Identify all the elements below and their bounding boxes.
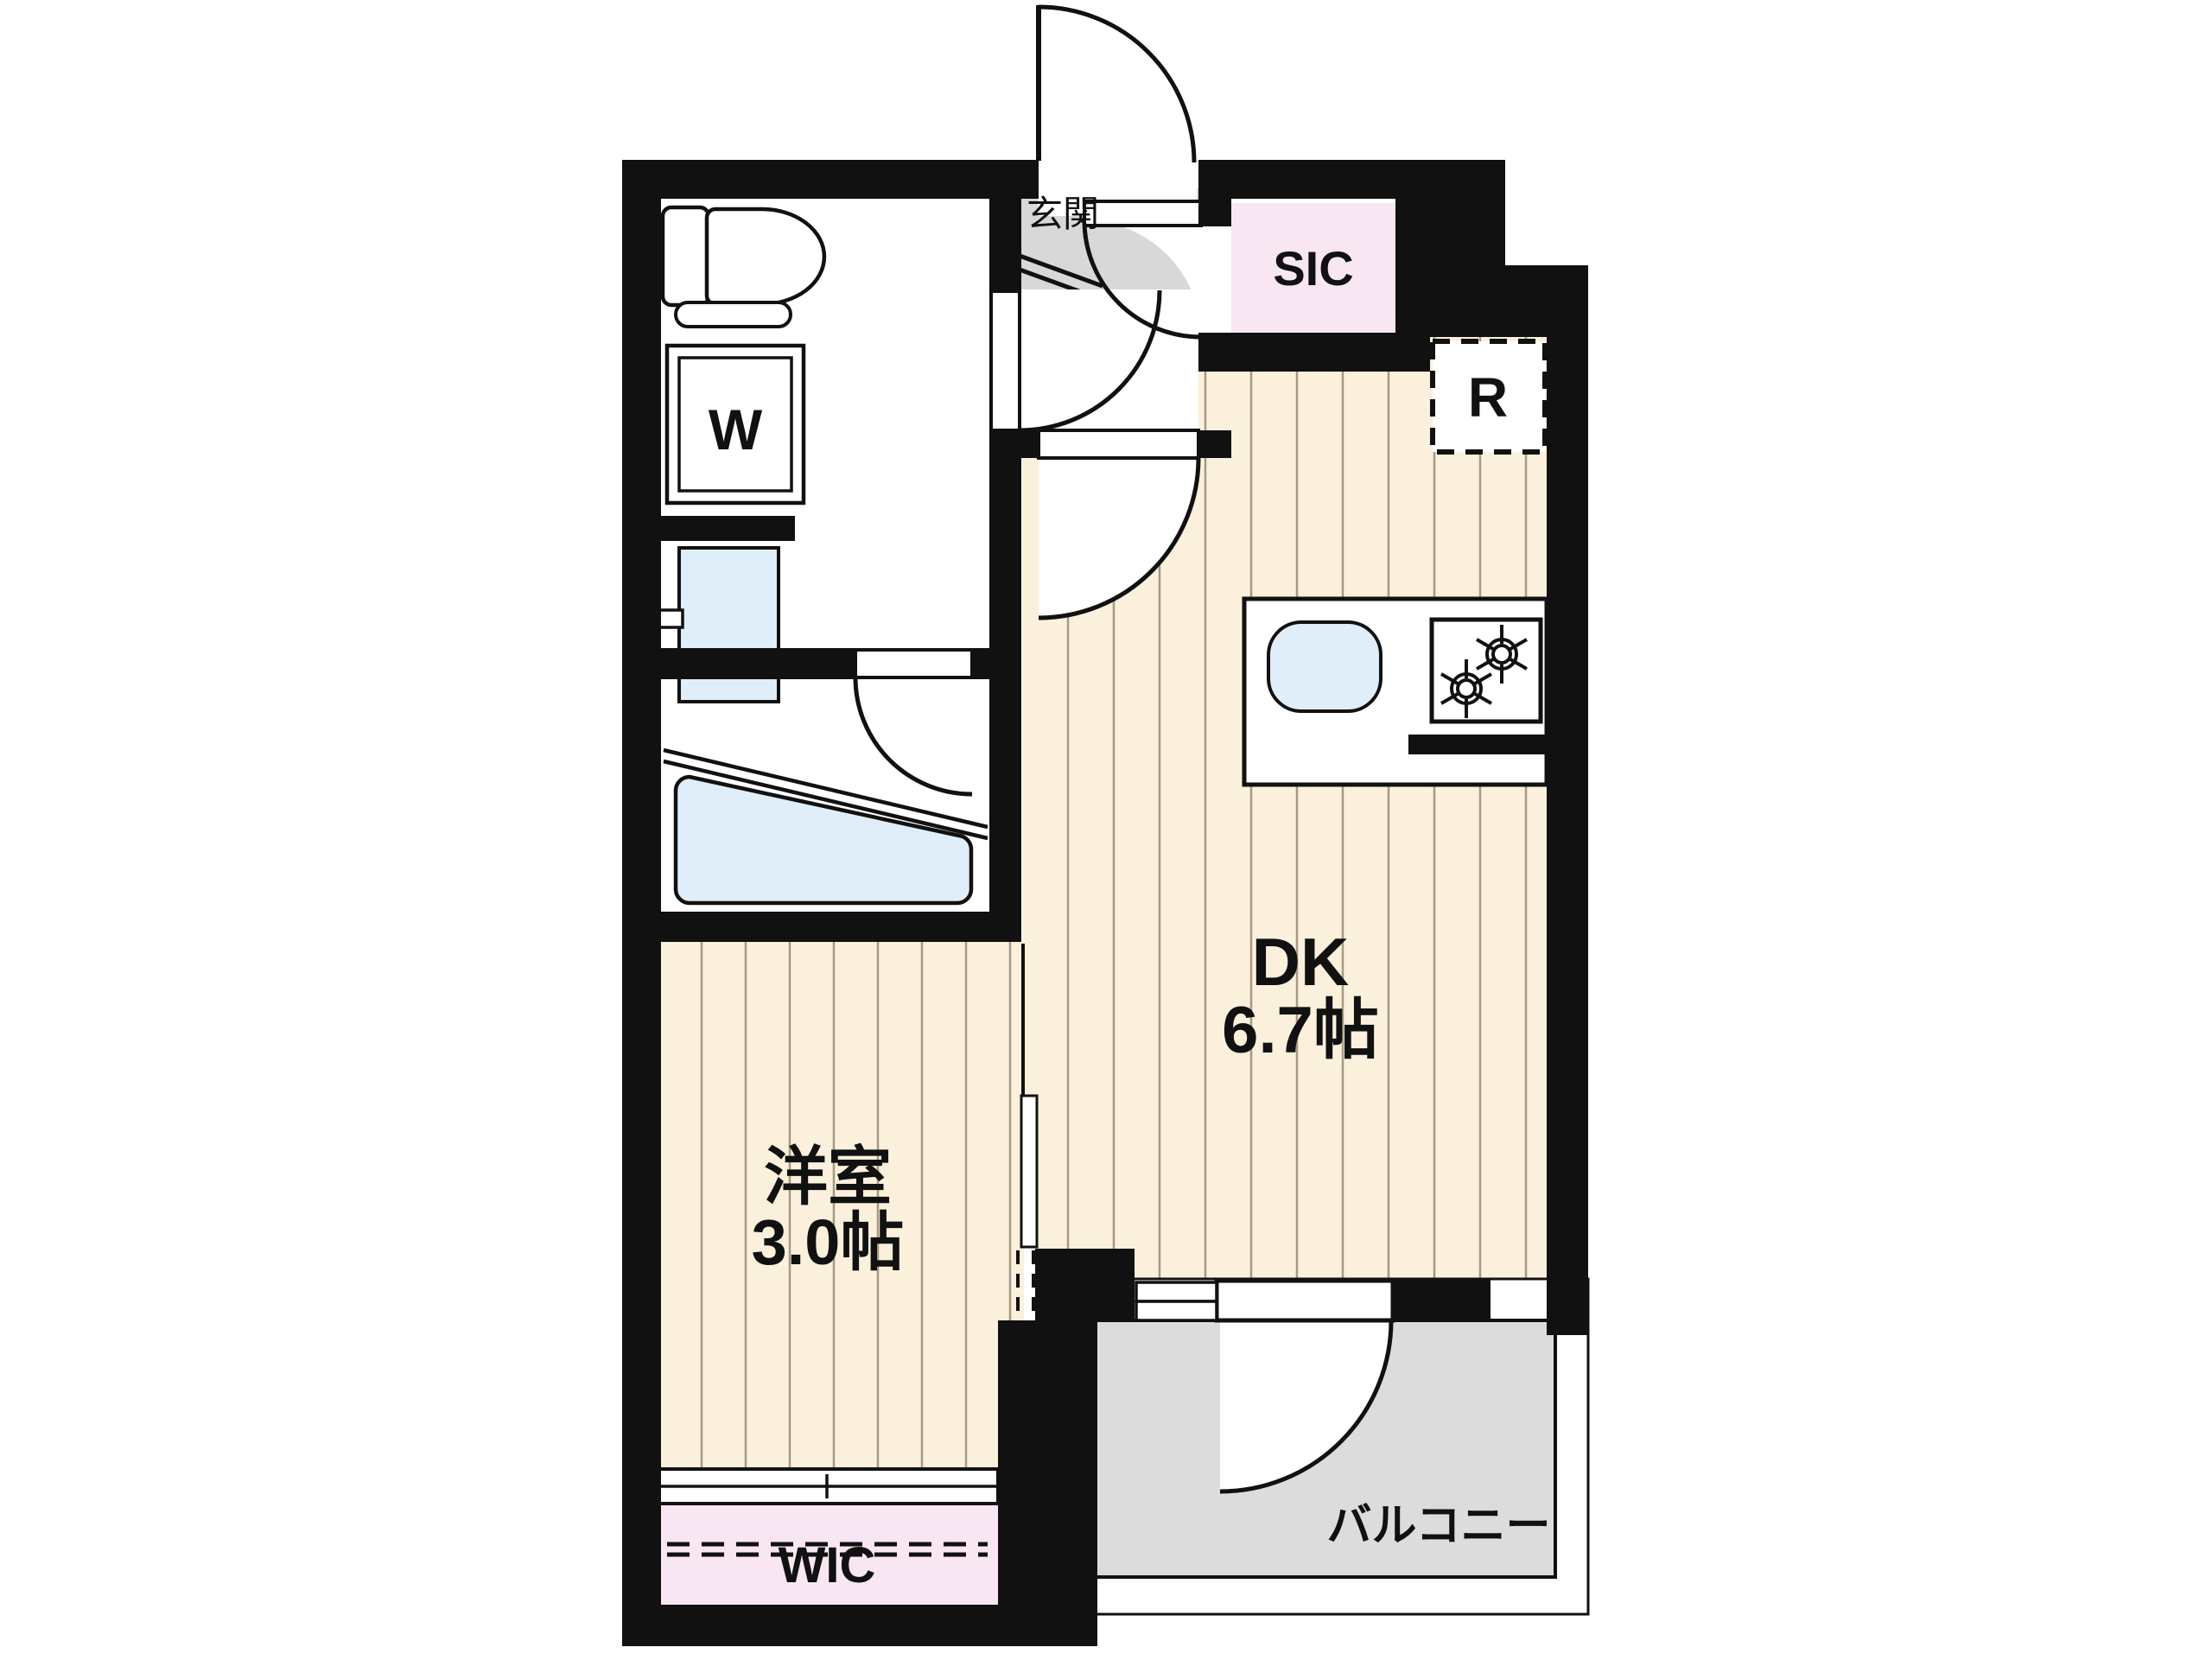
wall-left bbox=[622, 160, 661, 1646]
wall-sic-bottom bbox=[1198, 333, 1430, 372]
wall-bath-bottom bbox=[622, 912, 1021, 942]
wall-washer-divider bbox=[661, 516, 795, 541]
bathroom-door-leaf bbox=[855, 650, 972, 677]
wall-right bbox=[1547, 265, 1588, 1335]
wall-dk-bottom-left bbox=[1035, 1249, 1135, 1320]
sic-door-leaf bbox=[1084, 201, 1201, 226]
balcony-label: バルコニー bbox=[1327, 1501, 1551, 1551]
wall-kitchen-stub bbox=[1408, 735, 1547, 754]
sic-label: SIC bbox=[1273, 241, 1353, 296]
wall-wic-right bbox=[998, 1320, 1097, 1646]
western-room-size-label: 3.0帖 bbox=[752, 1206, 905, 1278]
wall-dk-door-stub-right bbox=[1198, 430, 1231, 458]
washroom-door-leaf bbox=[991, 291, 1020, 430]
genkan-label: 玄関 bbox=[1027, 194, 1099, 234]
dk-size-label: 6.7帖 bbox=[1222, 994, 1379, 1067]
dk-door-leaf bbox=[1039, 430, 1198, 458]
western-room-label: 洋室 bbox=[764, 1141, 892, 1212]
kitchen-counter bbox=[1244, 599, 1547, 785]
wall-dk-door-stub-left bbox=[1021, 430, 1039, 458]
wall-sic-left-stub bbox=[1198, 199, 1231, 226]
toilet-tank bbox=[663, 207, 709, 305]
wic-sliding-doors bbox=[657, 1469, 998, 1504]
kitchen-sink bbox=[1268, 622, 1381, 711]
hallway bbox=[1021, 289, 1198, 430]
wall-top-right bbox=[1198, 160, 1505, 199]
wall-washroom-upper bbox=[989, 199, 1021, 289]
toilet-bowl bbox=[707, 209, 824, 304]
gas-stove bbox=[1432, 620, 1541, 722]
partition-sliding-leaf bbox=[1021, 1096, 1037, 1247]
toilet-mat bbox=[676, 302, 791, 327]
wall-corner-step bbox=[1505, 265, 1547, 337]
balcony-door-leaf bbox=[1217, 1281, 1393, 1320]
dk-label: DK bbox=[1252, 924, 1350, 1000]
balcony-window-panels bbox=[1136, 1282, 1217, 1320]
wall-top-left bbox=[622, 160, 1039, 199]
wic-label: WIC bbox=[779, 1537, 876, 1593]
washing-machine-label: W bbox=[709, 398, 763, 461]
floor-plan-page: 玄関 SIC R W DK 6.7帖 洋室 3.0帖 WIC バルコニー bbox=[0, 0, 2212, 1660]
wall-bath-top-right bbox=[972, 648, 1021, 679]
wall-sic-right bbox=[1395, 199, 1505, 337]
wall-window-right-jamb bbox=[1391, 1279, 1491, 1320]
wall-bath-top-left bbox=[661, 648, 855, 679]
floor-plan-canvas: 玄関 SIC R W DK 6.7帖 洋室 3.0帖 WIC バルコニー bbox=[0, 0, 2212, 1660]
refrigerator-label: R bbox=[1468, 366, 1508, 429]
